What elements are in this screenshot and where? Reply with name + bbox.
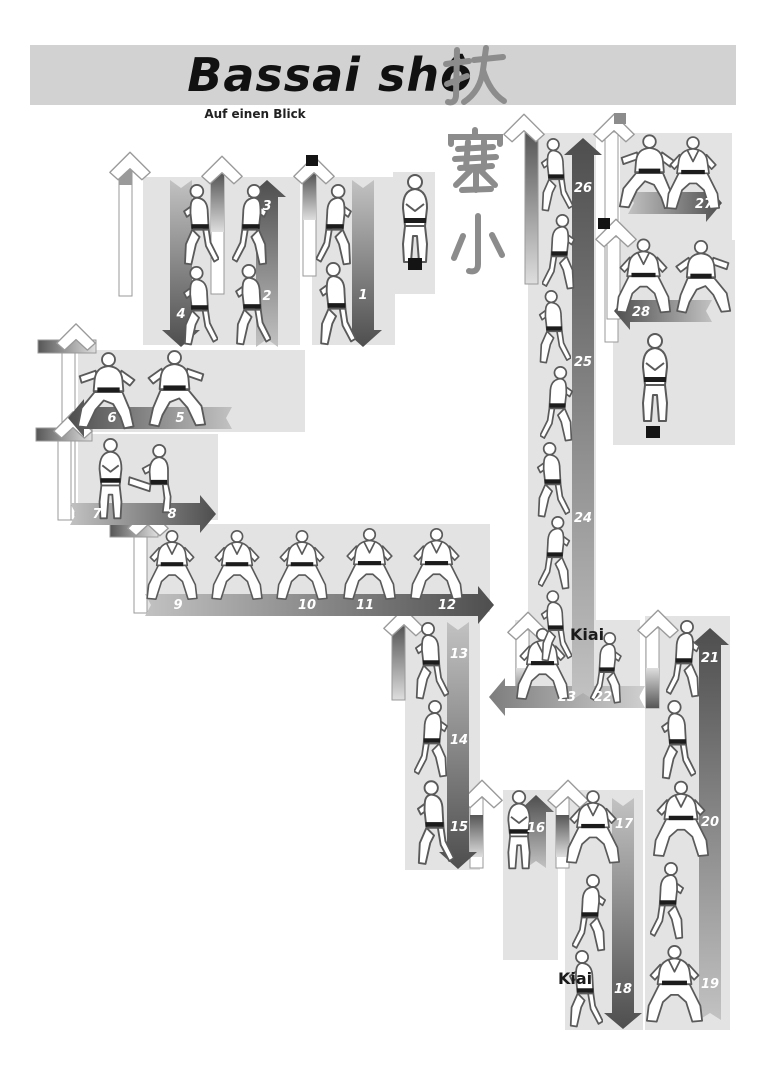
start-position-square: [408, 258, 422, 270]
page-subtitle: Auf einen Blick: [204, 107, 306, 121]
page-title: Bassai shô: [187, 48, 472, 102]
kanji-character-3: [454, 216, 502, 271]
step-number-27: 27: [695, 197, 714, 212]
step-number-20: 20: [701, 815, 719, 830]
step-number-8: 8: [167, 507, 176, 522]
kanji-character-2: [451, 130, 500, 190]
step-number-22: 22: [594, 690, 612, 705]
step-number-15: 15: [450, 820, 468, 835]
step-number-6: 6: [107, 411, 116, 426]
step-number-16: 16: [527, 821, 545, 836]
kiai-label-2: Kiai: [558, 969, 592, 988]
end-position-square: [646, 426, 660, 438]
step-number-2: 2: [262, 289, 271, 304]
step-number-9: 9: [173, 598, 182, 613]
step-number-28: 28: [632, 305, 650, 320]
step-number-11: 11: [356, 598, 374, 613]
step-number-23: 23: [558, 690, 576, 705]
step-number-3: 3: [262, 199, 271, 214]
step-number-14: 14: [450, 733, 468, 748]
step-number-1: 1: [358, 288, 367, 303]
step-number-10: 10: [298, 598, 316, 613]
step-number-24: 24: [574, 511, 592, 526]
step-number-18: 18: [614, 982, 632, 997]
direction-marker-icon: [504, 114, 544, 284]
step-number-12: 12: [438, 598, 456, 613]
step-number-17: 17: [615, 817, 634, 832]
step-number-4: 4: [175, 307, 185, 322]
step-number-26: 26: [574, 181, 592, 196]
step-number-7: 7: [92, 507, 102, 522]
step-number-5: 5: [175, 411, 184, 426]
kiai-label-1: Kiai: [570, 625, 604, 644]
step-number-19: 19: [701, 977, 719, 992]
kata-diagram: Bassai shô Auf einen Blick: [0, 0, 765, 1080]
step-number-25: 25: [574, 355, 592, 370]
step-number-21: 21: [701, 651, 719, 666]
kata-poster-page: Bassai shô Auf einen Blick: [0, 0, 765, 1080]
step-number-13: 13: [450, 647, 468, 662]
